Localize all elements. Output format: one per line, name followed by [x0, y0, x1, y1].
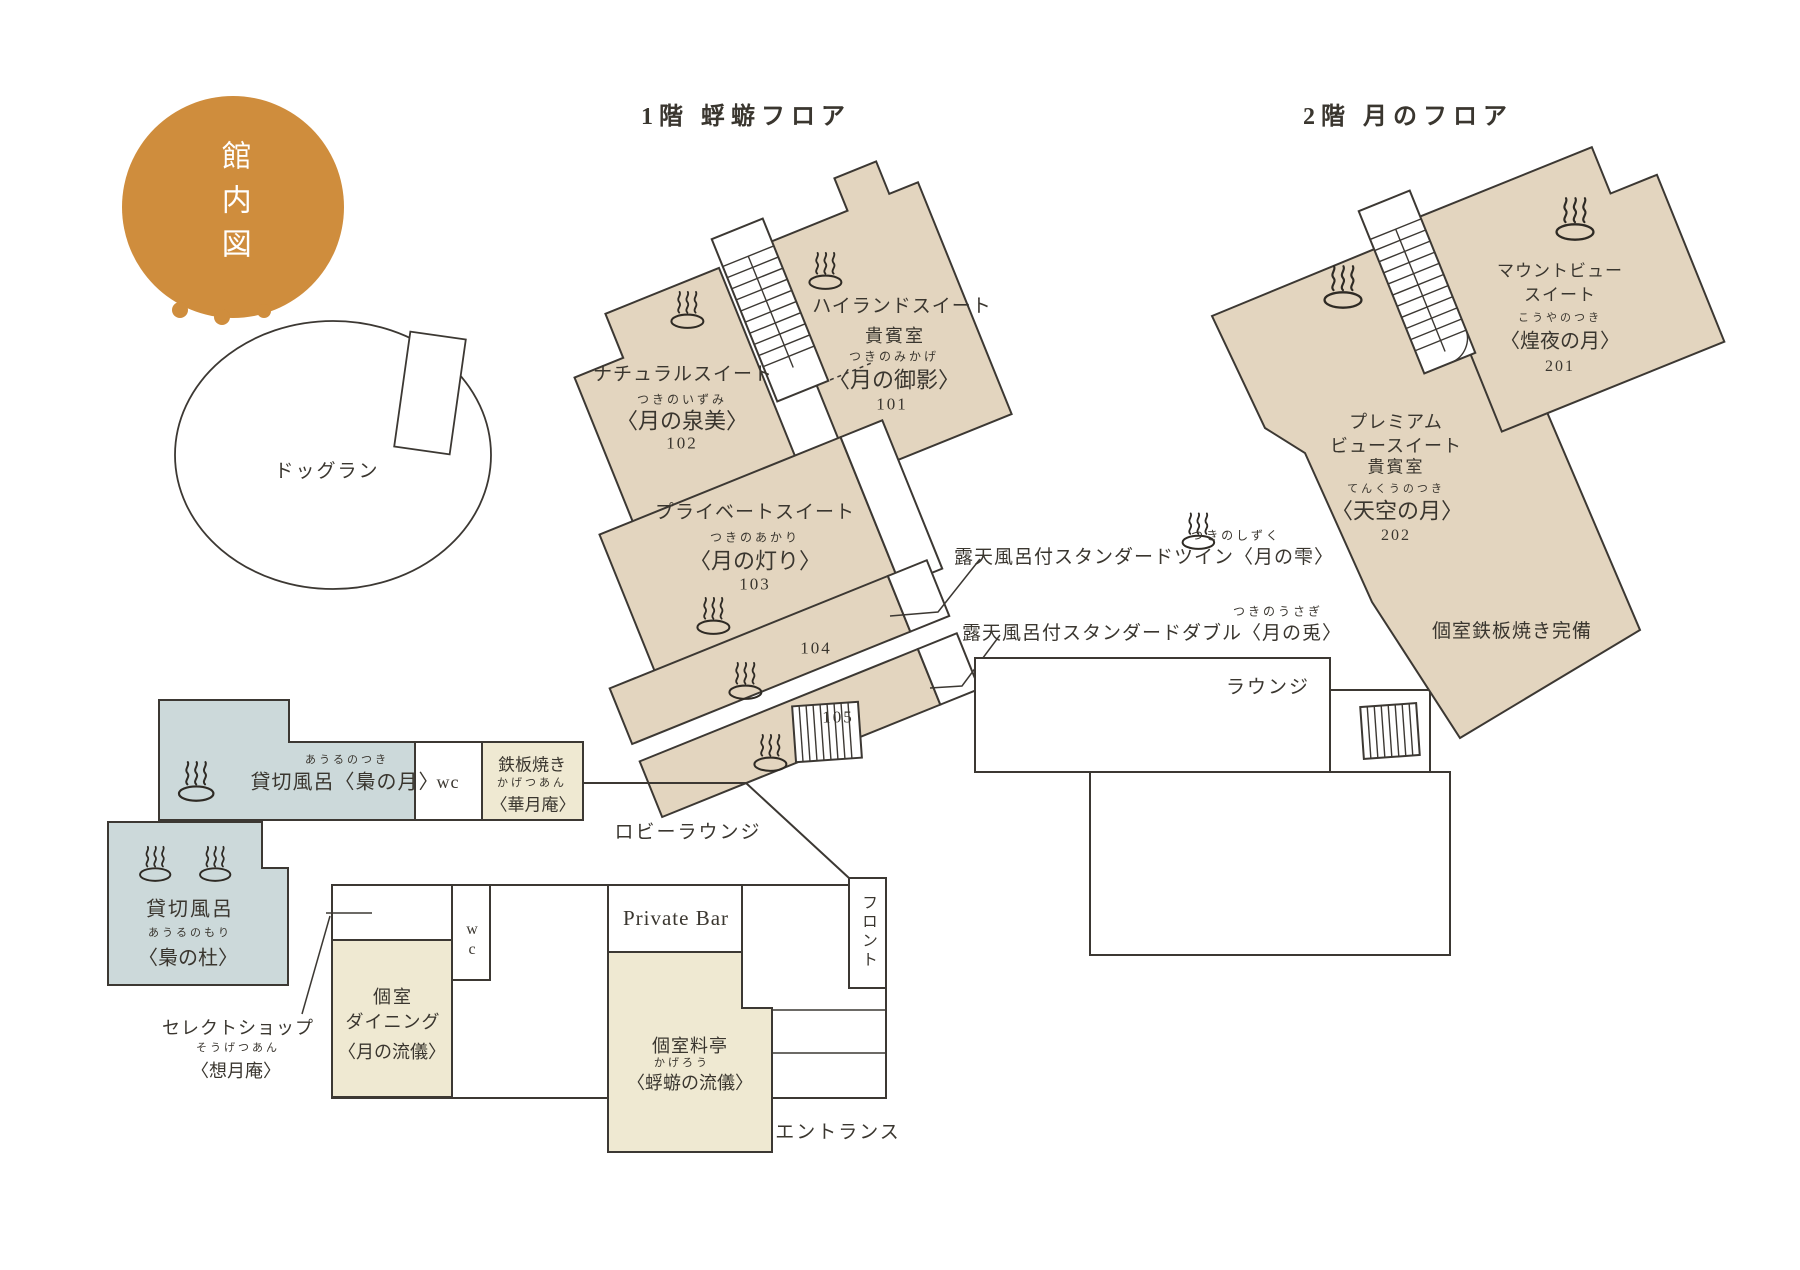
- room-102-name: 〈月の泉美〉: [616, 407, 748, 435]
- room-101-type: ハイランドスイート: [812, 295, 992, 319]
- facility-map: 館内図 1階 蜉蝣フロア 2階 月のフロア ドッグラン ナチュラルスイート つき…: [0, 0, 1800, 1270]
- room-103-number: 103: [739, 573, 771, 594]
- room-104-number: 104: [800, 637, 832, 658]
- dog-run-label: ドッグラン: [274, 460, 379, 484]
- room-201-type2: スイート: [1524, 284, 1596, 305]
- entrance-label: エントランス: [775, 1121, 901, 1145]
- room-202-number: 202: [1381, 526, 1411, 546]
- room-102-number: 102: [666, 432, 698, 453]
- bath-owl-forest-line1: 貸切風呂: [146, 898, 234, 923]
- wc-lower-w: w: [466, 920, 478, 940]
- room-103-furigana: つきのあかり: [710, 531, 800, 546]
- map-title: 館内図: [214, 140, 252, 272]
- teppanyaki-line2: 〈華月庵〉: [491, 794, 576, 815]
- ryotei-line1: 個室料亭: [652, 1035, 728, 1058]
- room-101-number: 101: [876, 393, 908, 414]
- bath-owl-forest-furigana: あうるのもり: [148, 927, 232, 941]
- room-201-name: 〈煌夜の月〉: [1500, 330, 1620, 355]
- wc-lower-c: c: [466, 940, 478, 960]
- room-201-number: 201: [1545, 357, 1575, 377]
- dining-line3: 〈月の流儀〉: [338, 1041, 446, 1064]
- select-shop-line1: セレクトショップ: [162, 1017, 314, 1040]
- room-102-furigana: つきのいずみ: [637, 393, 727, 408]
- teppanyaki-line1: 鉄板焼き: [498, 754, 566, 775]
- lounge-stairs-shape: [1360, 703, 1419, 759]
- lounge-label: ラウンジ: [1226, 676, 1310, 700]
- bath-owl-moon-furigana: あうるのつき: [305, 754, 389, 768]
- floor2-title: 2階 月のフロア: [1303, 102, 1513, 132]
- room-101-grade: 貴賓室: [865, 325, 925, 348]
- room-201-furigana: こうやのつき: [1518, 312, 1602, 326]
- select-shop-furigana: そうげつあん: [196, 1042, 280, 1056]
- private-bar-label: Private Bar: [623, 905, 729, 931]
- dining-line1: 個室: [373, 986, 413, 1009]
- floor2-guestrooms: [1212, 128, 1724, 738]
- annotation-double-furigana: つきのうさぎ: [1233, 605, 1323, 620]
- floor2-lounge-building: [975, 658, 1450, 955]
- select-shop-line2: 〈想月庵〉: [191, 1060, 281, 1083]
- dining-line2: ダイニング: [346, 1011, 441, 1034]
- room-202-type1: プレミアム: [1349, 411, 1443, 434]
- room-202-grade: 貴賓室: [1368, 456, 1425, 477]
- bath-owl-moon-label: 貸切風呂〈梟の月〉: [251, 771, 440, 796]
- teppanyaki-furigana: かげつあん: [497, 777, 567, 791]
- room-103-type: プライベートスイート: [655, 501, 855, 525]
- wc-upper-label: wc: [437, 771, 460, 794]
- room-101-name: 〈月の御影〉: [828, 366, 960, 394]
- wc-lower-label: w c: [466, 920, 478, 960]
- annotation-twin-furigana: つきのしずく: [1191, 529, 1281, 544]
- room-103-name: 〈月の灯り〉: [689, 547, 821, 575]
- dog-run-area: [175, 321, 491, 589]
- ryotei-line2: 〈蜉蝣の流儀〉: [627, 1072, 753, 1095]
- ryotei-furigana: かげろう: [654, 1057, 710, 1071]
- annotation-twin: 露天風呂付スタンダードツイン〈月の雫〉: [954, 546, 1334, 570]
- front-desk-label: フロント: [857, 894, 877, 970]
- teppan-note-label: 個室鉄板焼き完備: [1432, 620, 1592, 644]
- room-102-type: ナチュラルスイート: [593, 363, 773, 387]
- lobby-lounge-label: ロビーラウンジ: [614, 821, 761, 845]
- bath-owl-forest-line2: 〈梟の杜〉: [138, 947, 238, 972]
- room-202-name: 〈天空の月〉: [1331, 497, 1463, 525]
- room-201-type1: マウントビュー: [1497, 260, 1623, 281]
- annotation-double: 露天風呂付スタンダードダブル〈月の兎〉: [962, 622, 1342, 646]
- room-105-number: 105: [822, 706, 854, 727]
- room-101-furigana: つきのみかげ: [849, 350, 939, 365]
- floor1-title: 1階 蜉蝣フロア: [641, 102, 851, 132]
- room-202-furigana: てんくうのつき: [1347, 483, 1445, 497]
- room-202-type2: ビュースイート: [1330, 435, 1462, 458]
